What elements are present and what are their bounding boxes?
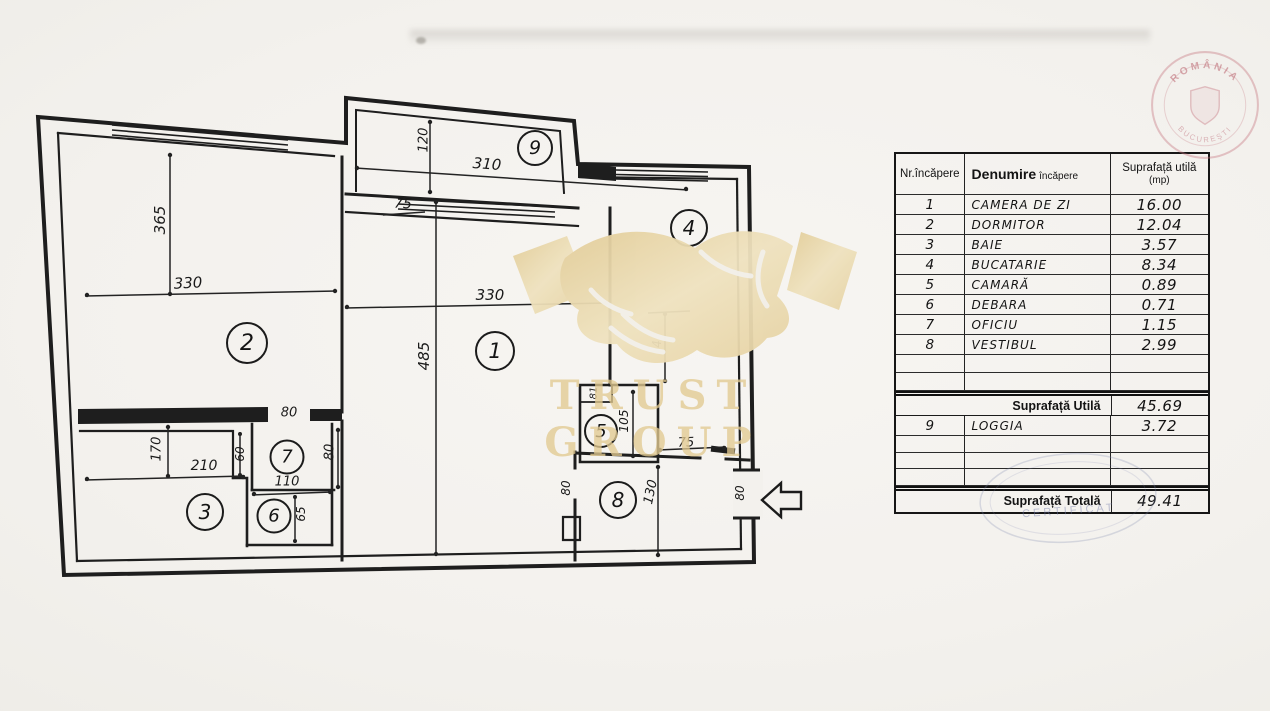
table-row: 5 CAMARĂ 0.89 xyxy=(896,275,1208,295)
table-row: 1 CAMERA DE ZI 16.00 xyxy=(896,195,1208,215)
dim-label: 75 xyxy=(394,196,413,213)
room-nr: 2 xyxy=(896,215,965,234)
table-empty-row xyxy=(896,373,1208,391)
table-row: 2 DORMITOR 12.04 xyxy=(896,215,1208,235)
header-name: Denumire încăpere xyxy=(965,154,1111,194)
dim-label: 330 xyxy=(476,286,505,304)
room-area: 3.57 xyxy=(1111,235,1208,254)
table-row: 8 VESTIBUL 2.99 xyxy=(896,335,1208,355)
right-sleeve xyxy=(787,232,857,310)
room-name: BUCATARIE xyxy=(965,255,1111,274)
room-area: 0.89 xyxy=(1111,275,1208,294)
dim-label: 60 xyxy=(233,446,247,461)
room-nr: 6 xyxy=(896,295,965,314)
room-marker-6: 6 xyxy=(257,499,292,534)
room-nr: 5 xyxy=(896,275,965,294)
stamp-city-text: BUCUREŞTI xyxy=(1176,124,1234,144)
dim-label: 210 xyxy=(191,458,218,474)
watermark-brand-text: TRUST GROUP xyxy=(428,372,878,466)
header-name-main: Denumire xyxy=(972,166,1037,182)
stamp-shield-icon xyxy=(1191,87,1220,125)
room-name: CAMERA DE ZI xyxy=(965,195,1111,214)
table-empty-row xyxy=(896,355,1208,373)
entrance-arrow-icon xyxy=(762,483,801,517)
handshake-watermark-icon xyxy=(505,218,865,368)
room-area: 16.00 xyxy=(1111,195,1208,214)
round-official-stamp: ROMÂNIA BUCUREŞTI xyxy=(1148,48,1262,162)
room-nr: 1 xyxy=(896,195,965,214)
scanned-floorplan-document: 365 330 120 310 75 330 485 80 170 210 60… xyxy=(0,0,1270,711)
room-nr: 9 xyxy=(896,416,965,435)
header-area-main: Suprafață utilă xyxy=(1122,162,1196,175)
header-area-unit: (mp) xyxy=(1149,175,1170,187)
header-name-sub: încăpere xyxy=(1039,171,1078,182)
table-row: 6 DEBARA 0.71 xyxy=(896,295,1208,315)
dim-label: 80 xyxy=(281,406,298,421)
pilaster xyxy=(563,517,580,540)
loggia-row: 9 LOGGIA 3.72 xyxy=(896,416,1208,436)
room-name: DEBARA xyxy=(965,295,1111,314)
subtotal-row: Suprafață Utilă 45.69 xyxy=(896,391,1208,416)
table-row: 4 BUCATARIE 8.34 xyxy=(896,255,1208,275)
room-marker-3: 3 xyxy=(186,493,224,531)
room-nr: 7 xyxy=(896,315,965,334)
room-marker-7: 7 xyxy=(270,440,305,475)
certificate-stamp: CERTIFICAT xyxy=(970,441,1167,554)
subtotal-label: Suprafață Utilă xyxy=(896,396,1112,415)
divider-room3-room6 xyxy=(233,478,247,546)
subtotal-value: 45.69 xyxy=(1112,396,1208,415)
room-marker-9: 9 xyxy=(517,130,553,166)
room-area: 3.72 xyxy=(1111,416,1208,435)
header-nr: Nr.încăpere xyxy=(896,154,965,194)
dim-label: 80 xyxy=(323,444,338,461)
room-nr: 4 xyxy=(896,255,965,274)
svg-text:BUCUREŞTI: BUCUREŞTI xyxy=(1176,124,1234,144)
dim-label: 310 xyxy=(472,154,502,174)
dim-label: 170 xyxy=(150,437,165,462)
wall-pier xyxy=(578,164,616,181)
dim-label: 365 xyxy=(151,206,169,235)
room-nr: 3 xyxy=(896,235,965,254)
inner-wall-bottom xyxy=(77,549,741,561)
dim-label: 485 xyxy=(415,342,433,371)
stamp-country-text: ROMÂNIA xyxy=(1169,58,1242,85)
dim-label: 110 xyxy=(275,475,300,490)
room-name: BAIE xyxy=(965,235,1111,254)
room-area: 1.15 xyxy=(1111,315,1208,334)
table-row: 3 BAIE 3.57 xyxy=(896,235,1208,255)
room-area: 12.04 xyxy=(1111,215,1208,234)
room-name: CAMARĂ xyxy=(965,275,1111,294)
table-row: 7 OFICIU 1.15 xyxy=(896,315,1208,335)
thick-wall-band xyxy=(78,407,268,424)
room-marker-2: 2 xyxy=(226,322,268,364)
dim-label: 330 xyxy=(173,273,203,292)
room-area: 2.99 xyxy=(1111,335,1208,354)
dim-label: 120 xyxy=(417,128,432,153)
svg-text:ROMÂNIA: ROMÂNIA xyxy=(1169,58,1242,85)
room-area: 8.34 xyxy=(1111,255,1208,274)
room-name: LOGGIA xyxy=(965,416,1111,435)
room-nr: 8 xyxy=(896,335,965,354)
room-name: DORMITOR xyxy=(965,215,1111,234)
dim-label: 80 xyxy=(559,480,573,495)
dim-label: 65 xyxy=(294,506,308,521)
certificate-stamp-text: CERTIFICAT xyxy=(1022,502,1116,521)
thick-wall-band-2 xyxy=(310,409,342,421)
room-area: 0.71 xyxy=(1111,295,1208,314)
room-marker-8: 8 xyxy=(599,481,637,519)
room-name: OFICIU xyxy=(965,315,1111,334)
dim-label: 80 xyxy=(733,485,747,500)
room-name: VESTIBUL xyxy=(965,335,1111,354)
